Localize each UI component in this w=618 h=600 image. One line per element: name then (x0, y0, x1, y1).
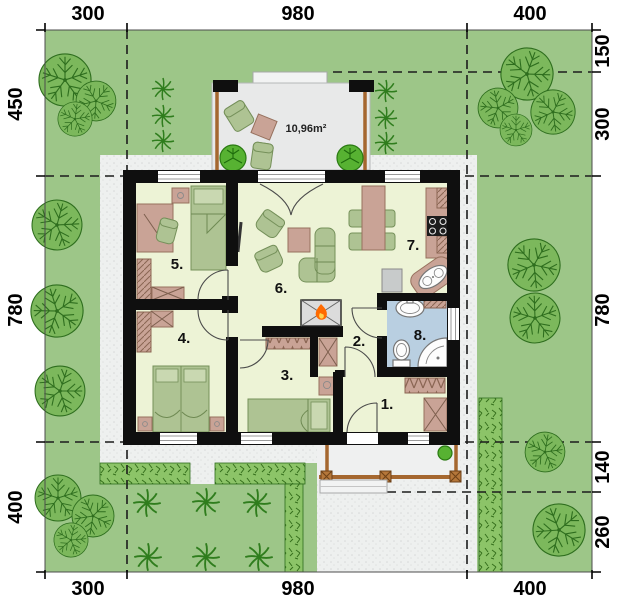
shrub (134, 543, 162, 571)
window (385, 171, 420, 182)
dim-right-2: 300 (592, 107, 614, 140)
wardrobe (137, 312, 151, 352)
site-plan: 10,96m² (0, 0, 618, 600)
bed-single (191, 186, 226, 270)
dim-right-4: 140 (592, 450, 614, 483)
terrace-area-label: 10,96m² (286, 123, 327, 135)
floor-plan-page: 10,96m² (0, 0, 618, 600)
bush (438, 446, 452, 460)
terrace: 10,96m² (212, 72, 374, 171)
room7-label: 7. (407, 237, 420, 254)
dining-table (362, 186, 385, 250)
room6-label: 6. (275, 280, 288, 297)
sink (396, 299, 424, 317)
hedge-row (215, 463, 305, 484)
dim-right-5: 260 (592, 515, 614, 548)
shrub (245, 543, 273, 571)
bed-double (153, 366, 209, 432)
dim-top-2: 980 (281, 3, 314, 25)
fridge (382, 269, 402, 292)
nightstand (210, 417, 224, 431)
front-door-opening (347, 433, 378, 444)
dim-right-1: 150 (592, 34, 614, 67)
window (408, 433, 429, 444)
tree (35, 366, 85, 416)
dim-bottom-3: 400 (513, 578, 546, 600)
hedge-row (479, 398, 502, 572)
shelf (266, 338, 312, 349)
window (241, 433, 272, 444)
bush (220, 145, 246, 171)
garden-path (190, 463, 215, 484)
bush (337, 145, 363, 171)
terrace-chair (250, 142, 273, 171)
dim-top-3: 400 (513, 3, 546, 25)
window (160, 433, 197, 444)
terrace-post (213, 80, 238, 92)
terrace-step (253, 72, 327, 84)
dim-left-2: 780 (5, 293, 27, 326)
window (448, 308, 459, 340)
house: 1. 2. 3. 4. 5. 6. 7. 8. (123, 170, 460, 445)
shrub (192, 488, 220, 516)
tall-cabinet (437, 188, 448, 208)
fireplace (301, 300, 341, 326)
room4-label: 4. (178, 330, 191, 347)
room8-label: 8. (414, 327, 427, 344)
shrub (243, 489, 271, 517)
room3-label: 3. (281, 367, 294, 384)
room1-label: 1. (381, 396, 394, 413)
dim-right-3: 780 (592, 293, 614, 326)
nightstand (138, 417, 152, 431)
toilet (393, 340, 410, 367)
wardrobe (137, 259, 151, 301)
fern-plant (375, 80, 397, 102)
terrace-door-opening (258, 171, 325, 182)
nightstand (319, 377, 335, 395)
shrub (192, 543, 220, 571)
hedge-row (100, 463, 190, 484)
room5-label: 5. (171, 256, 184, 273)
room2-label: 2. (353, 333, 366, 350)
stove (427, 216, 448, 236)
tall-cabinet (437, 236, 448, 253)
tree (500, 114, 532, 146)
coffee-table (288, 228, 310, 252)
dim-bottom-2: 980 (281, 578, 314, 600)
dim-bottom-1: 300 (71, 578, 104, 600)
fern-plant (375, 132, 397, 154)
dim-top-1: 300 (71, 3, 104, 25)
terrace-post (349, 80, 374, 92)
fern-plant (152, 105, 174, 127)
fern-plant (152, 130, 174, 152)
window (158, 171, 200, 182)
fern-plant (152, 78, 174, 100)
dim-left-3: 400 (5, 490, 27, 523)
hedge-row (285, 484, 303, 572)
shrub (133, 489, 161, 517)
coat-rack (405, 378, 445, 393)
driveway (317, 480, 460, 572)
bed-single (248, 399, 330, 432)
fern-plant (375, 107, 397, 129)
nightstand (172, 188, 189, 203)
dim-left-1: 450 (5, 87, 27, 120)
